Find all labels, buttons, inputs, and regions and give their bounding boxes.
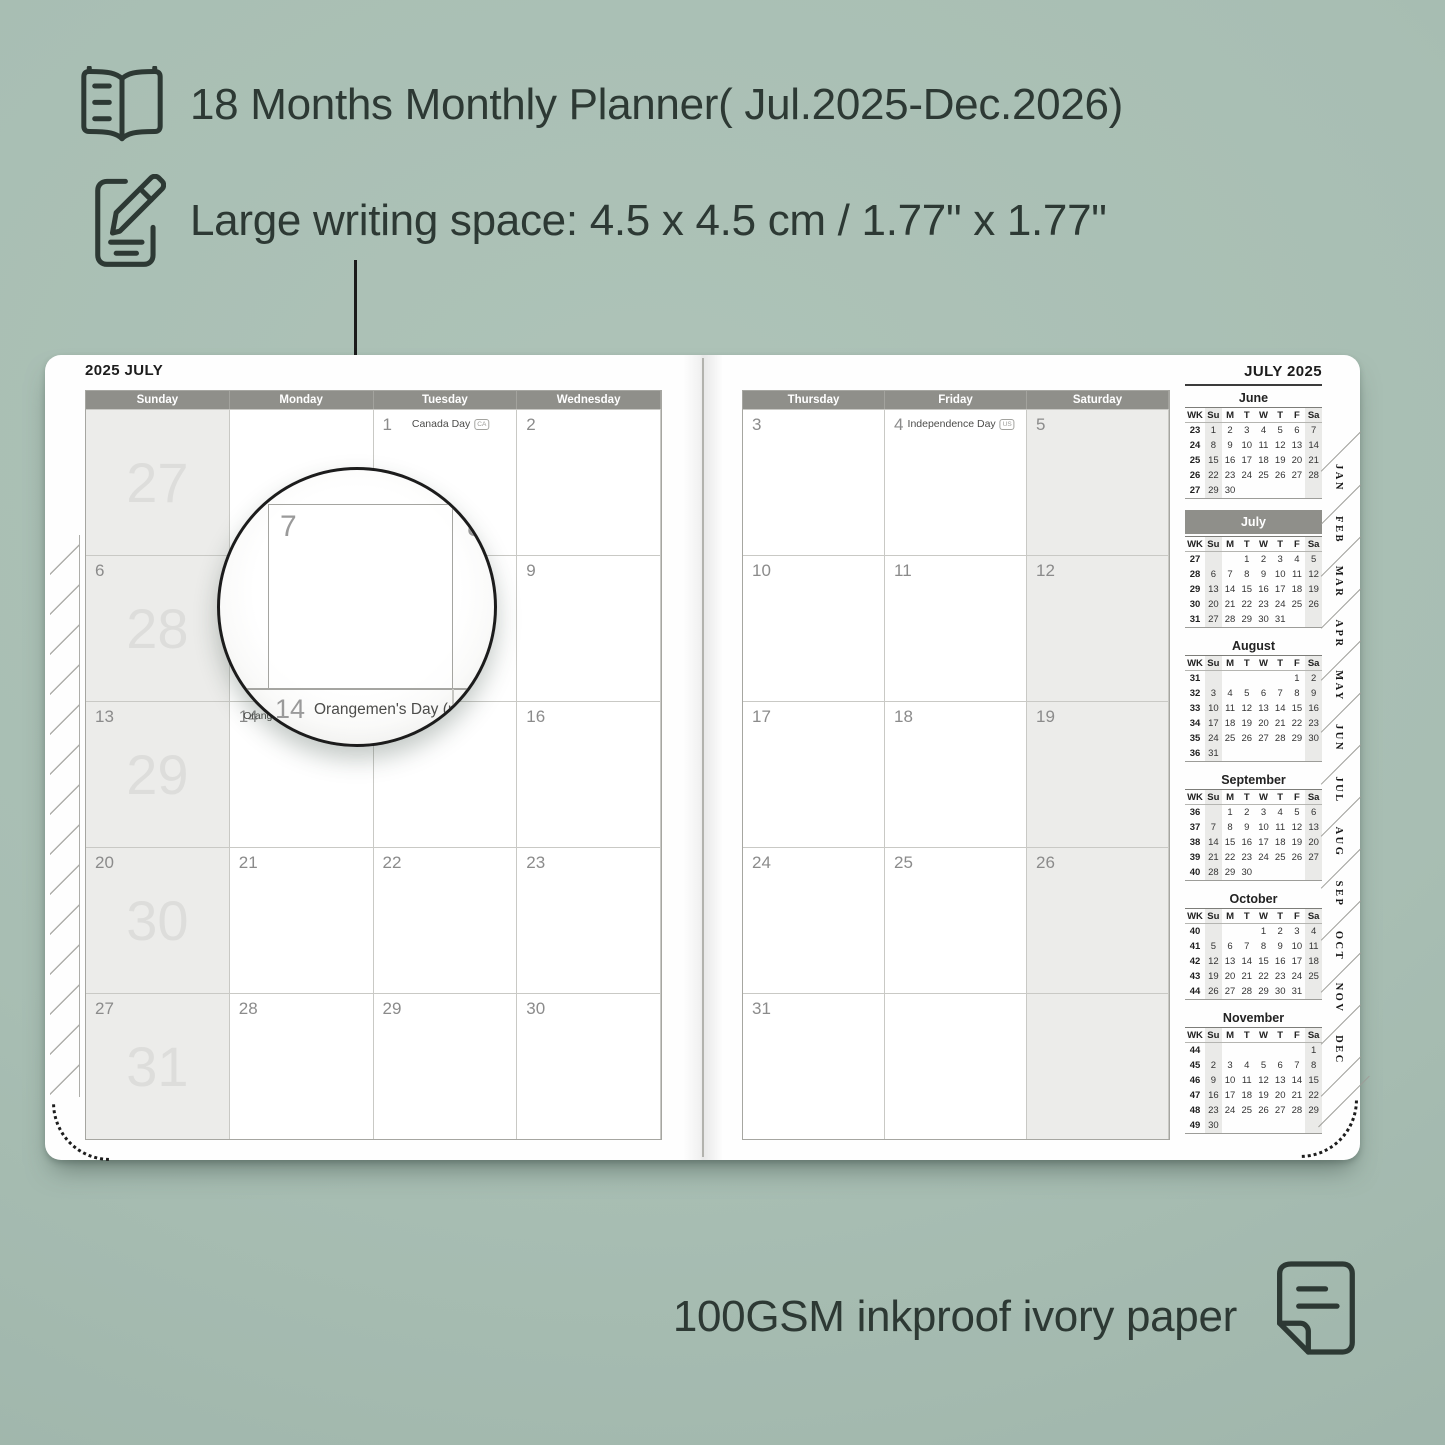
month-tab-label: APR <box>1333 619 1344 648</box>
mini-date: 30 <box>1305 731 1322 746</box>
mini-date: 13 <box>1205 582 1222 597</box>
date-number: 1 <box>383 415 392 435</box>
mini-date <box>1272 865 1289 880</box>
mini-date <box>1305 865 1322 880</box>
mini-date: 28 <box>1305 468 1322 483</box>
date-number: 6 <box>95 561 104 581</box>
mini-date: 6 <box>1255 686 1272 701</box>
month-tab-aug: AUG <box>1322 816 1360 868</box>
date-number: 23 <box>526 853 545 873</box>
mini-col-header: M <box>1222 909 1239 924</box>
mini-date <box>1272 671 1289 686</box>
mini-date <box>1238 1118 1255 1133</box>
mini-date: 11 <box>1238 1073 1255 1088</box>
mini-date: 15 <box>1222 835 1239 850</box>
mini-date: 30 <box>1205 1118 1222 1133</box>
mini-date: 4 <box>1255 423 1272 438</box>
mini-col-header: WK <box>1185 1028 1205 1043</box>
mini-date: 24 <box>1222 1103 1239 1118</box>
mini-col-header: Sa <box>1305 408 1322 423</box>
mini-date: 19 <box>1238 716 1255 731</box>
mini-col-header: T <box>1272 537 1289 552</box>
mini-date <box>1305 612 1322 627</box>
mini-date: 9 <box>1205 1073 1222 1088</box>
paper-sheet-icon <box>1272 1260 1358 1356</box>
month-tab-label: JAN <box>1333 464 1344 492</box>
mini-date: 18 <box>1255 453 1272 468</box>
mini-date: 5 <box>1289 805 1306 820</box>
mini-date <box>1289 746 1306 761</box>
mini-date: 19 <box>1305 582 1322 597</box>
mini-date: 7 <box>1238 939 1255 954</box>
mini-date: 3 <box>1205 686 1222 701</box>
month-tab-label: MAY <box>1333 670 1344 702</box>
mini-date: 13 <box>1222 954 1239 969</box>
mini-col-header: Su <box>1205 537 1222 552</box>
mini-month: JulyWKSuMTWTFSa2712345286789101112291314… <box>1185 510 1322 628</box>
mini-date: 15 <box>1205 453 1222 468</box>
mini-date: 19 <box>1205 969 1222 984</box>
mini-date: 14 <box>1205 835 1222 850</box>
mini-week-number: 27 <box>1185 552 1205 567</box>
mini-date: 14 <box>1272 701 1289 716</box>
mini-date: 1 <box>1255 924 1272 939</box>
mini-month: OctoberWKSuMTWTFSa4012344156789101142121… <box>1185 892 1322 1000</box>
mini-date: 1 <box>1289 671 1306 686</box>
mini-date: 17 <box>1205 716 1222 731</box>
mini-date: 22 <box>1205 468 1222 483</box>
mini-date: 26 <box>1238 731 1255 746</box>
mini-date: 29 <box>1205 483 1222 498</box>
day-cell: 17 <box>743 701 885 847</box>
mini-month-title: August <box>1185 639 1322 653</box>
mini-week-number: 31 <box>1185 671 1205 686</box>
mini-month-title: June <box>1185 391 1322 405</box>
mini-col-header: T <box>1238 656 1255 671</box>
mini-date: 5 <box>1305 552 1322 567</box>
mini-month: JuneWKSuMTWTFSa2312345672489101112131425… <box>1185 391 1322 499</box>
date-number: 17 <box>752 707 771 727</box>
mini-date <box>1272 1043 1289 1058</box>
mini-col-header: T <box>1238 537 1255 552</box>
mini-date <box>1272 746 1289 761</box>
date-number: 13 <box>95 707 114 727</box>
mini-date: 27 <box>1205 612 1222 627</box>
mini-month-table: WKSuMTWTFSa23123456724891011121314251516… <box>1185 407 1322 499</box>
mini-date: 6 <box>1289 423 1306 438</box>
mini-date: 16 <box>1255 582 1272 597</box>
day-header: Sunday <box>86 391 230 409</box>
mini-col-header: M <box>1222 408 1239 423</box>
mini-date: 7 <box>1305 423 1322 438</box>
mini-date: 22 <box>1238 597 1255 612</box>
month-tab-label: OCT <box>1333 931 1344 961</box>
mini-date: 26 <box>1255 1103 1272 1118</box>
day-cell: 29 <box>374 993 518 1139</box>
mini-date <box>1205 805 1222 820</box>
mini-date: 25 <box>1289 597 1306 612</box>
mini-week-number: 37 <box>1185 820 1205 835</box>
mini-col-header: M <box>1222 656 1239 671</box>
date-number: 31 <box>752 999 771 1019</box>
day-cell: 18 <box>885 701 1027 847</box>
mini-date: 5 <box>1238 686 1255 701</box>
date-number: 21 <box>239 853 258 873</box>
month-tab-jun: JUN <box>1322 712 1360 764</box>
sidebar-rule <box>1185 384 1322 386</box>
mini-week-number: 39 <box>1185 850 1205 865</box>
mini-date <box>1255 1118 1272 1133</box>
day-cell: 22 <box>374 847 518 993</box>
date-number: 12 <box>1036 561 1055 581</box>
mini-month-title: July <box>1185 510 1322 534</box>
mini-col-header: M <box>1222 1028 1239 1043</box>
mini-date <box>1238 924 1255 939</box>
mini-date: 8 <box>1305 1058 1322 1073</box>
mini-date: 12 <box>1205 954 1222 969</box>
mini-date <box>1238 746 1255 761</box>
mini-col-header: Sa <box>1305 790 1322 805</box>
mini-date: 27 <box>1289 468 1306 483</box>
footer-text: 100GSM inkproof ivory paper <box>673 1292 1237 1342</box>
mini-date: 13 <box>1289 438 1306 453</box>
mini-date: 17 <box>1222 1088 1239 1103</box>
mini-calendar-sidebar: JULY 2025 JuneWKSuMTWTFSa231234567248910… <box>1185 363 1322 1145</box>
day-cell: 5 <box>1027 409 1169 555</box>
date-number: 25 <box>894 853 913 873</box>
mini-col-header: F <box>1289 1028 1306 1043</box>
month-tab-label: MAR <box>1333 566 1344 599</box>
mini-date <box>1272 1118 1289 1133</box>
day-cell: 25 <box>885 847 1027 993</box>
mini-date: 7 <box>1205 820 1222 835</box>
mini-date: 31 <box>1289 984 1306 999</box>
mini-date: 25 <box>1222 731 1239 746</box>
feature-text-months: 18 Months Monthly Planner( Jul.2025-Dec.… <box>190 80 1123 130</box>
mini-month-table: WKSuMTWTFSa31123234567893310111213141516… <box>1185 655 1322 762</box>
day-cell: 30 <box>517 993 661 1139</box>
mini-month-table: WKSuMTWTFSa36123456377891011121338141516… <box>1185 789 1322 881</box>
mini-date <box>1222 746 1239 761</box>
mini-date: 19 <box>1255 1088 1272 1103</box>
month-tab-oct: OCT <box>1322 920 1360 972</box>
mini-date: 20 <box>1255 716 1272 731</box>
mini-date: 1 <box>1238 552 1255 567</box>
mini-date: 12 <box>1255 1073 1272 1088</box>
mini-week-number: 24 <box>1185 438 1205 453</box>
left-page-title: 2025 JULY <box>85 362 163 379</box>
mini-date: 29 <box>1222 865 1239 880</box>
mini-date: 28 <box>1238 984 1255 999</box>
month-tab-label: DEC <box>1333 1035 1344 1065</box>
mini-date: 8 <box>1205 438 1222 453</box>
month-tab-jul: JUL <box>1322 764 1360 816</box>
mini-date: 27 <box>1305 850 1322 865</box>
day-cell: 3 <box>743 409 885 555</box>
mini-date: 23 <box>1272 969 1289 984</box>
mini-date: 2 <box>1272 924 1289 939</box>
mini-date: 15 <box>1289 701 1306 716</box>
mini-date: 23 <box>1205 1103 1222 1118</box>
mini-date: 18 <box>1289 582 1306 597</box>
mini-date: 10 <box>1205 701 1222 716</box>
mini-date: 1 <box>1222 805 1239 820</box>
mini-date: 20 <box>1305 835 1322 850</box>
day-header: Monday <box>230 391 374 409</box>
month-tab-apr: APR <box>1322 608 1360 660</box>
mini-date: 24 <box>1272 597 1289 612</box>
day-cell <box>885 993 1027 1139</box>
mini-date <box>1255 671 1272 686</box>
mini-date <box>1238 483 1255 498</box>
mini-col-header: WK <box>1185 408 1205 423</box>
mini-date: 18 <box>1222 716 1239 731</box>
mini-col-header: Su <box>1205 1028 1222 1043</box>
month-tab-sep: SEP <box>1322 868 1360 920</box>
mini-date <box>1289 865 1306 880</box>
mini-week-number: 40 <box>1185 924 1205 939</box>
day-cell: 27 <box>86 409 230 555</box>
mini-date: 8 <box>1255 939 1272 954</box>
dotted-corner-right <box>1300 1100 1362 1161</box>
mini-col-header: T <box>1238 1028 1255 1043</box>
mini-col-header: Su <box>1205 656 1222 671</box>
mini-col-header: W <box>1255 1028 1272 1043</box>
mini-week-number: 29 <box>1185 582 1205 597</box>
mini-date: 9 <box>1305 686 1322 701</box>
holiday-label: Canada DayCA <box>412 418 489 430</box>
mini-date <box>1255 1043 1272 1058</box>
mini-week-number: 33 <box>1185 701 1205 716</box>
mini-date: 31 <box>1205 746 1222 761</box>
mini-date: 19 <box>1272 453 1289 468</box>
mini-date: 14 <box>1238 954 1255 969</box>
mini-date: 2 <box>1238 805 1255 820</box>
right-month-grid: ThursdayFridaySaturday34Independence Day… <box>742 390 1170 1140</box>
mini-date <box>1272 483 1289 498</box>
mini-date: 10 <box>1222 1073 1239 1088</box>
month-tab-label: SEP <box>1333 881 1344 908</box>
mini-col-header: Sa <box>1305 656 1322 671</box>
sidebar-title: JULY 2025 <box>1185 363 1322 384</box>
mini-date <box>1289 612 1306 627</box>
mini-date: 22 <box>1289 716 1306 731</box>
mini-date: 17 <box>1238 453 1255 468</box>
mini-date: 21 <box>1205 850 1222 865</box>
mini-week-number: 26 <box>1185 468 1205 483</box>
mini-date: 6 <box>1205 567 1222 582</box>
mini-date: 1 <box>1305 1043 1322 1058</box>
mini-col-header: Sa <box>1305 537 1322 552</box>
mini-date: 28 <box>1272 731 1289 746</box>
mini-date <box>1222 1043 1239 1058</box>
month-tab-label: AUG <box>1333 827 1344 858</box>
mini-date: 12 <box>1272 438 1289 453</box>
date-number: 3 <box>752 415 761 435</box>
mini-date: 23 <box>1305 716 1322 731</box>
date-number: 30 <box>526 999 545 1019</box>
date-number: 19 <box>1036 707 1055 727</box>
mini-date <box>1305 483 1322 498</box>
mini-date: 26 <box>1205 984 1222 999</box>
day-cell: 16 <box>517 701 661 847</box>
day-cell: 23 <box>517 847 661 993</box>
mini-week-number: 48 <box>1185 1103 1205 1118</box>
mini-col-header: W <box>1255 408 1272 423</box>
mini-date: 3 <box>1222 1058 1239 1073</box>
magnified-holiday-label: Orangemen's Day (n.i.)UK <box>314 701 497 719</box>
open-book-icon <box>76 66 168 146</box>
mini-week-number: 36 <box>1185 805 1205 820</box>
mini-date: 27 <box>1222 984 1239 999</box>
mini-col-header: W <box>1255 909 1272 924</box>
mini-date: 7 <box>1222 567 1239 582</box>
day-cell <box>1027 993 1169 1139</box>
mini-col-header: F <box>1289 408 1306 423</box>
date-number: 2 <box>526 415 535 435</box>
day-cell: 10 <box>743 555 885 701</box>
mini-col-header: W <box>1255 537 1272 552</box>
mini-date: 13 <box>1305 820 1322 835</box>
magnified-grid-line <box>220 688 497 690</box>
date-number: 26 <box>1036 853 1055 873</box>
mini-date: 16 <box>1222 453 1239 468</box>
mini-col-header: T <box>1238 790 1255 805</box>
mini-date: 24 <box>1255 850 1272 865</box>
month-tab-label: NOV <box>1333 983 1344 1014</box>
mini-date <box>1238 671 1255 686</box>
mini-date: 9 <box>1222 438 1239 453</box>
mini-date <box>1205 924 1222 939</box>
mini-date: 26 <box>1272 468 1289 483</box>
mini-date: 3 <box>1272 552 1289 567</box>
mini-col-header: WK <box>1185 909 1205 924</box>
mini-date: 10 <box>1255 820 1272 835</box>
mini-date: 23 <box>1238 850 1255 865</box>
day-cell: 11 <box>885 555 1027 701</box>
month-tab-label: FEB <box>1333 516 1344 544</box>
mini-col-header: Su <box>1205 909 1222 924</box>
day-cell: 12 <box>1027 555 1169 701</box>
mini-date: 25 <box>1255 468 1272 483</box>
date-number: 5 <box>1036 415 1045 435</box>
day-cell: 24 <box>743 847 885 993</box>
mini-date: 17 <box>1272 582 1289 597</box>
mini-date: 28 <box>1222 612 1239 627</box>
mini-date: 5 <box>1255 1058 1272 1073</box>
day-header: Friday <box>885 391 1027 409</box>
mini-col-header: T <box>1272 1028 1289 1043</box>
mini-date: 8 <box>1289 686 1306 701</box>
mini-date: 19 <box>1289 835 1306 850</box>
mini-date: 13 <box>1272 1073 1289 1088</box>
mini-col-header: T <box>1272 909 1289 924</box>
mini-date: 12 <box>1305 567 1322 582</box>
mini-date: 24 <box>1289 969 1306 984</box>
mini-date: 31 <box>1272 612 1289 627</box>
mini-week-number: 46 <box>1185 1073 1205 1088</box>
mini-month: AugustWKSuMTWTFSa31123234567893310111213… <box>1185 639 1322 762</box>
mini-date: 8 <box>1238 567 1255 582</box>
mini-month-title: October <box>1185 892 1322 906</box>
mini-date <box>1222 552 1239 567</box>
mini-date: 28 <box>1205 865 1222 880</box>
mini-date: 6 <box>1222 939 1239 954</box>
day-cell: 286 <box>86 555 230 701</box>
mini-date: 22 <box>1255 969 1272 984</box>
mini-col-header: WK <box>1185 537 1205 552</box>
mini-date: 27 <box>1272 1103 1289 1118</box>
mini-week-number: 45 <box>1185 1058 1205 1073</box>
day-cell: 2913 <box>86 701 230 847</box>
mini-col-header: F <box>1289 537 1306 552</box>
mini-date: 29 <box>1255 984 1272 999</box>
mini-date: 30 <box>1222 483 1239 498</box>
month-tab-nov: NOV <box>1322 972 1360 1024</box>
tab-edge-hatching <box>50 535 80 1097</box>
mini-date: 11 <box>1255 438 1272 453</box>
mini-date: 15 <box>1255 954 1272 969</box>
date-number: 20 <box>95 853 114 873</box>
day-cell: 26 <box>1027 847 1169 993</box>
date-number: 16 <box>526 707 545 727</box>
day-cell: 4Independence DayUS <box>885 409 1027 555</box>
mini-date: 10 <box>1238 438 1255 453</box>
mini-col-header: M <box>1222 790 1239 805</box>
mini-date <box>1289 1043 1306 1058</box>
mini-date: 25 <box>1305 969 1322 984</box>
month-index-tabs: JANFEBMARAPRMAYJUNJULAUGSEPOCTNOVDEC <box>1322 452 1360 1076</box>
mini-date: 14 <box>1305 438 1322 453</box>
date-number: 10 <box>752 561 771 581</box>
mini-date: 5 <box>1272 423 1289 438</box>
day-cell: 2 <box>517 409 661 555</box>
month-tab-label: JUL <box>1333 776 1344 803</box>
mini-week-number: 44 <box>1185 1043 1205 1058</box>
planner-spread: 2025 JULY SundayMondayTuesdayWednesday27… <box>45 355 1360 1160</box>
date-number: 28 <box>239 999 258 1019</box>
mini-date: 25 <box>1272 850 1289 865</box>
mini-date: 4 <box>1289 552 1306 567</box>
mini-month-title: November <box>1185 1011 1322 1025</box>
mini-date: 23 <box>1255 597 1272 612</box>
mini-date: 3 <box>1289 924 1306 939</box>
mini-date <box>1255 865 1272 880</box>
mini-date <box>1205 671 1222 686</box>
mini-date <box>1255 483 1272 498</box>
mini-week-number: 38 <box>1185 835 1205 850</box>
mini-week-number: 23 <box>1185 423 1205 438</box>
mini-date <box>1238 1043 1255 1058</box>
mini-date <box>1222 924 1239 939</box>
mini-col-header: Su <box>1205 408 1222 423</box>
mini-col-header: Su <box>1205 790 1222 805</box>
mini-date: 23 <box>1222 468 1239 483</box>
mini-col-header: T <box>1272 656 1289 671</box>
pencil-note-icon <box>94 174 166 268</box>
mini-col-header: F <box>1289 790 1306 805</box>
mini-date: 9 <box>1255 567 1272 582</box>
country-badge: US <box>1000 419 1015 430</box>
mini-date: 14 <box>1222 582 1239 597</box>
mini-col-header: T <box>1238 909 1255 924</box>
mini-week-number: 49 <box>1185 1118 1205 1133</box>
month-tab-jan: JAN <box>1322 452 1360 504</box>
day-cell: 21 <box>230 847 374 993</box>
mini-date: 14 <box>1289 1073 1306 1088</box>
mini-col-header: WK <box>1185 656 1205 671</box>
mini-date: 29 <box>1289 731 1306 746</box>
